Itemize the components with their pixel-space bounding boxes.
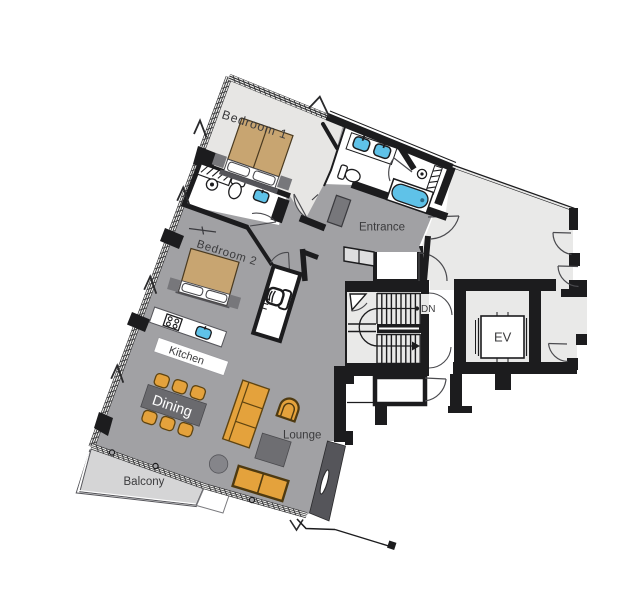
svg-text:Lounge: Lounge	[283, 430, 321, 442]
svg-text:Balcony: Balcony	[124, 476, 165, 488]
svg-text:EV: EV	[494, 330, 512, 345]
svg-text:DN: DN	[421, 304, 435, 315]
svg-text:Entrance: Entrance	[359, 222, 405, 234]
